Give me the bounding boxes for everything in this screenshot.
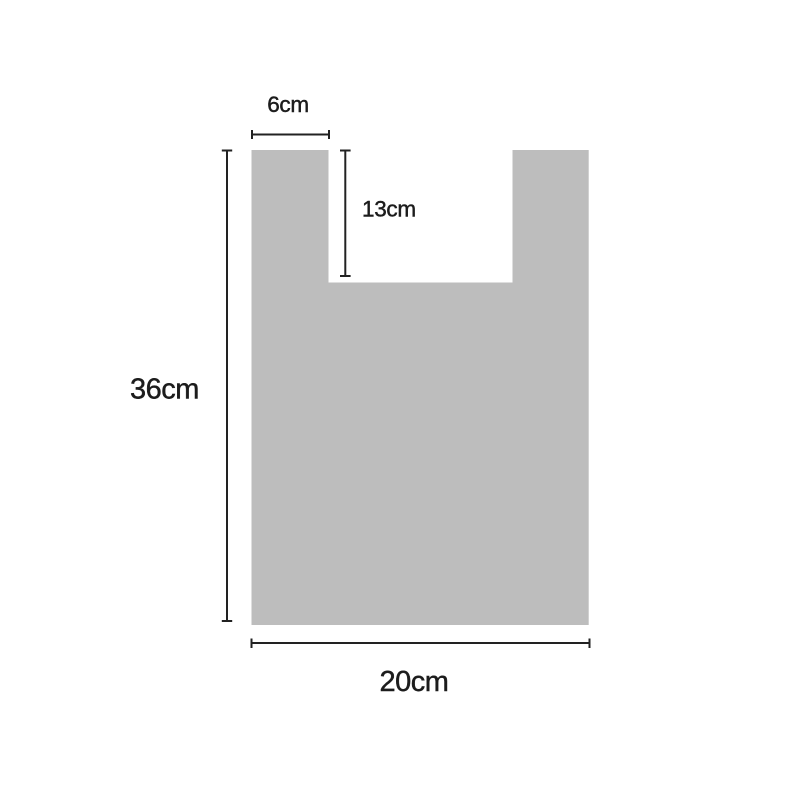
- svg-text:13cm: 13cm: [362, 197, 416, 222]
- svg-text:6cm: 6cm: [267, 92, 309, 117]
- svg-text:36cm: 36cm: [130, 374, 199, 406]
- svg-text:20cm: 20cm: [380, 666, 449, 698]
